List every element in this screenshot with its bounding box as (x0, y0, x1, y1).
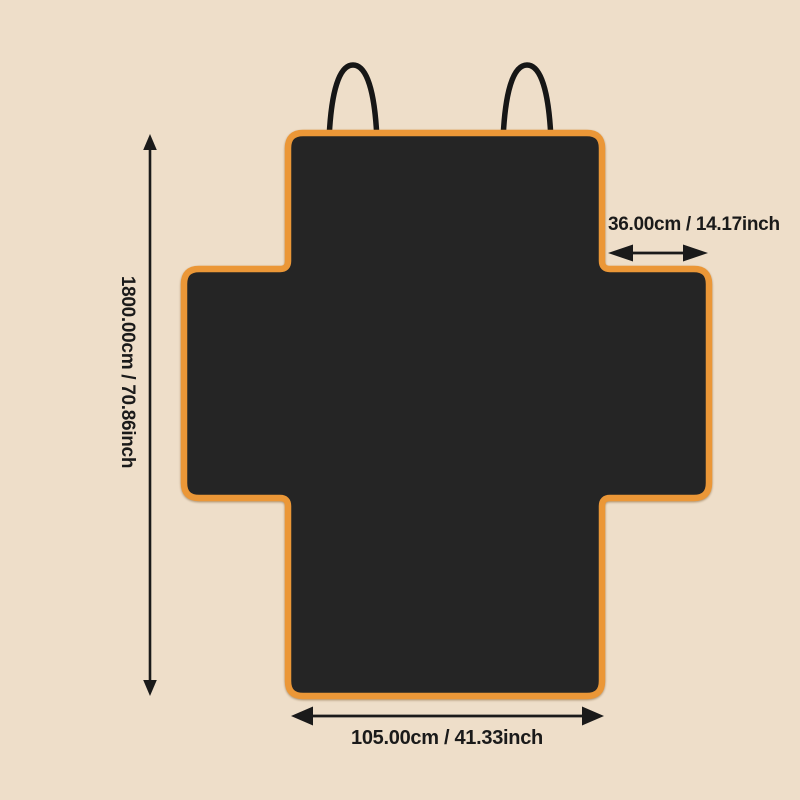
handle-loop-left-icon (329, 65, 377, 140)
handle-loop-right-icon (503, 65, 551, 140)
height-dimension-label: 1800.00cm / 70.86inch (116, 276, 138, 468)
flap-width-dimension-arrow-icon (608, 245, 708, 262)
flap-width-dimension-label: 36.00cm / 14.17inch (608, 214, 780, 236)
height-dimension-arrow-icon (143, 134, 157, 696)
width-dimension-label: 105.00cm / 41.33inch (287, 727, 607, 750)
width-dimension-arrow-icon (291, 707, 604, 726)
product-dimension-diagram: 1800.00cm / 70.86inch 36.00cm / 14.17inc… (0, 0, 800, 800)
